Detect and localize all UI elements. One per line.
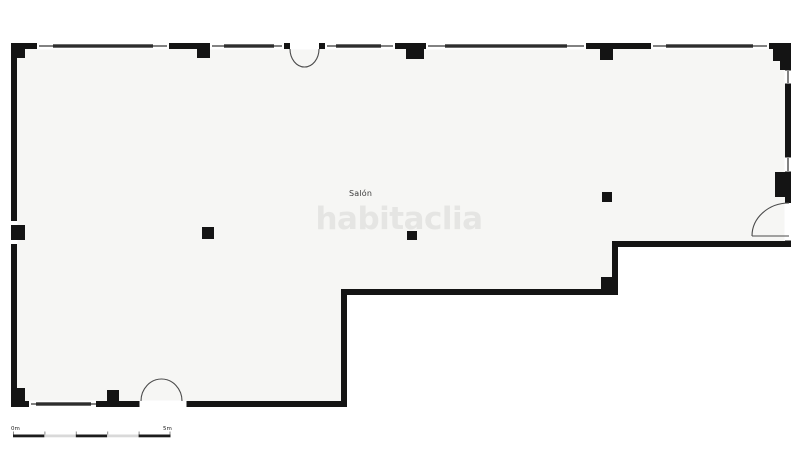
- window-run-top-1: [37, 43, 169, 50]
- scale-bar: 0m 5m: [11, 426, 172, 437]
- scale-label-end: 5m: [163, 426, 172, 432]
- corner-pier-bottom-left: [11, 388, 25, 407]
- top-wall-pier-3: [600, 43, 613, 60]
- column-1: [202, 227, 214, 239]
- top-wall-pier-1: [197, 43, 210, 58]
- scale-label-start: 0m: [11, 426, 20, 432]
- corner-pier-top-left: [11, 43, 25, 58]
- corner-pier-top-right-ext: [780, 43, 791, 70]
- left-wall-pier: [11, 225, 25, 240]
- window-run-top-2: [210, 43, 284, 50]
- window-run-top-5: [651, 43, 769, 50]
- room-label: Salón: [349, 188, 372, 198]
- watermark: habitaclia: [315, 201, 482, 237]
- window-left-gap-2: [11, 240, 18, 244]
- step-corner-pier: [601, 277, 614, 289]
- floorplan-canvas: habitaclia Salón 0m 5m: [0, 0, 800, 450]
- window-right-1: [785, 71, 792, 84]
- window-run-top-3: [325, 43, 395, 50]
- window-left-gap-1: [11, 221, 18, 225]
- top-wall-pier-2: [406, 43, 424, 59]
- window-run-bottom: [29, 401, 96, 408]
- bottom-wall-pier: [107, 390, 119, 401]
- window-right-2: [785, 158, 792, 172]
- right-wall-pier: [775, 172, 791, 197]
- window-run-top-4: [426, 43, 586, 50]
- column-3: [602, 192, 612, 202]
